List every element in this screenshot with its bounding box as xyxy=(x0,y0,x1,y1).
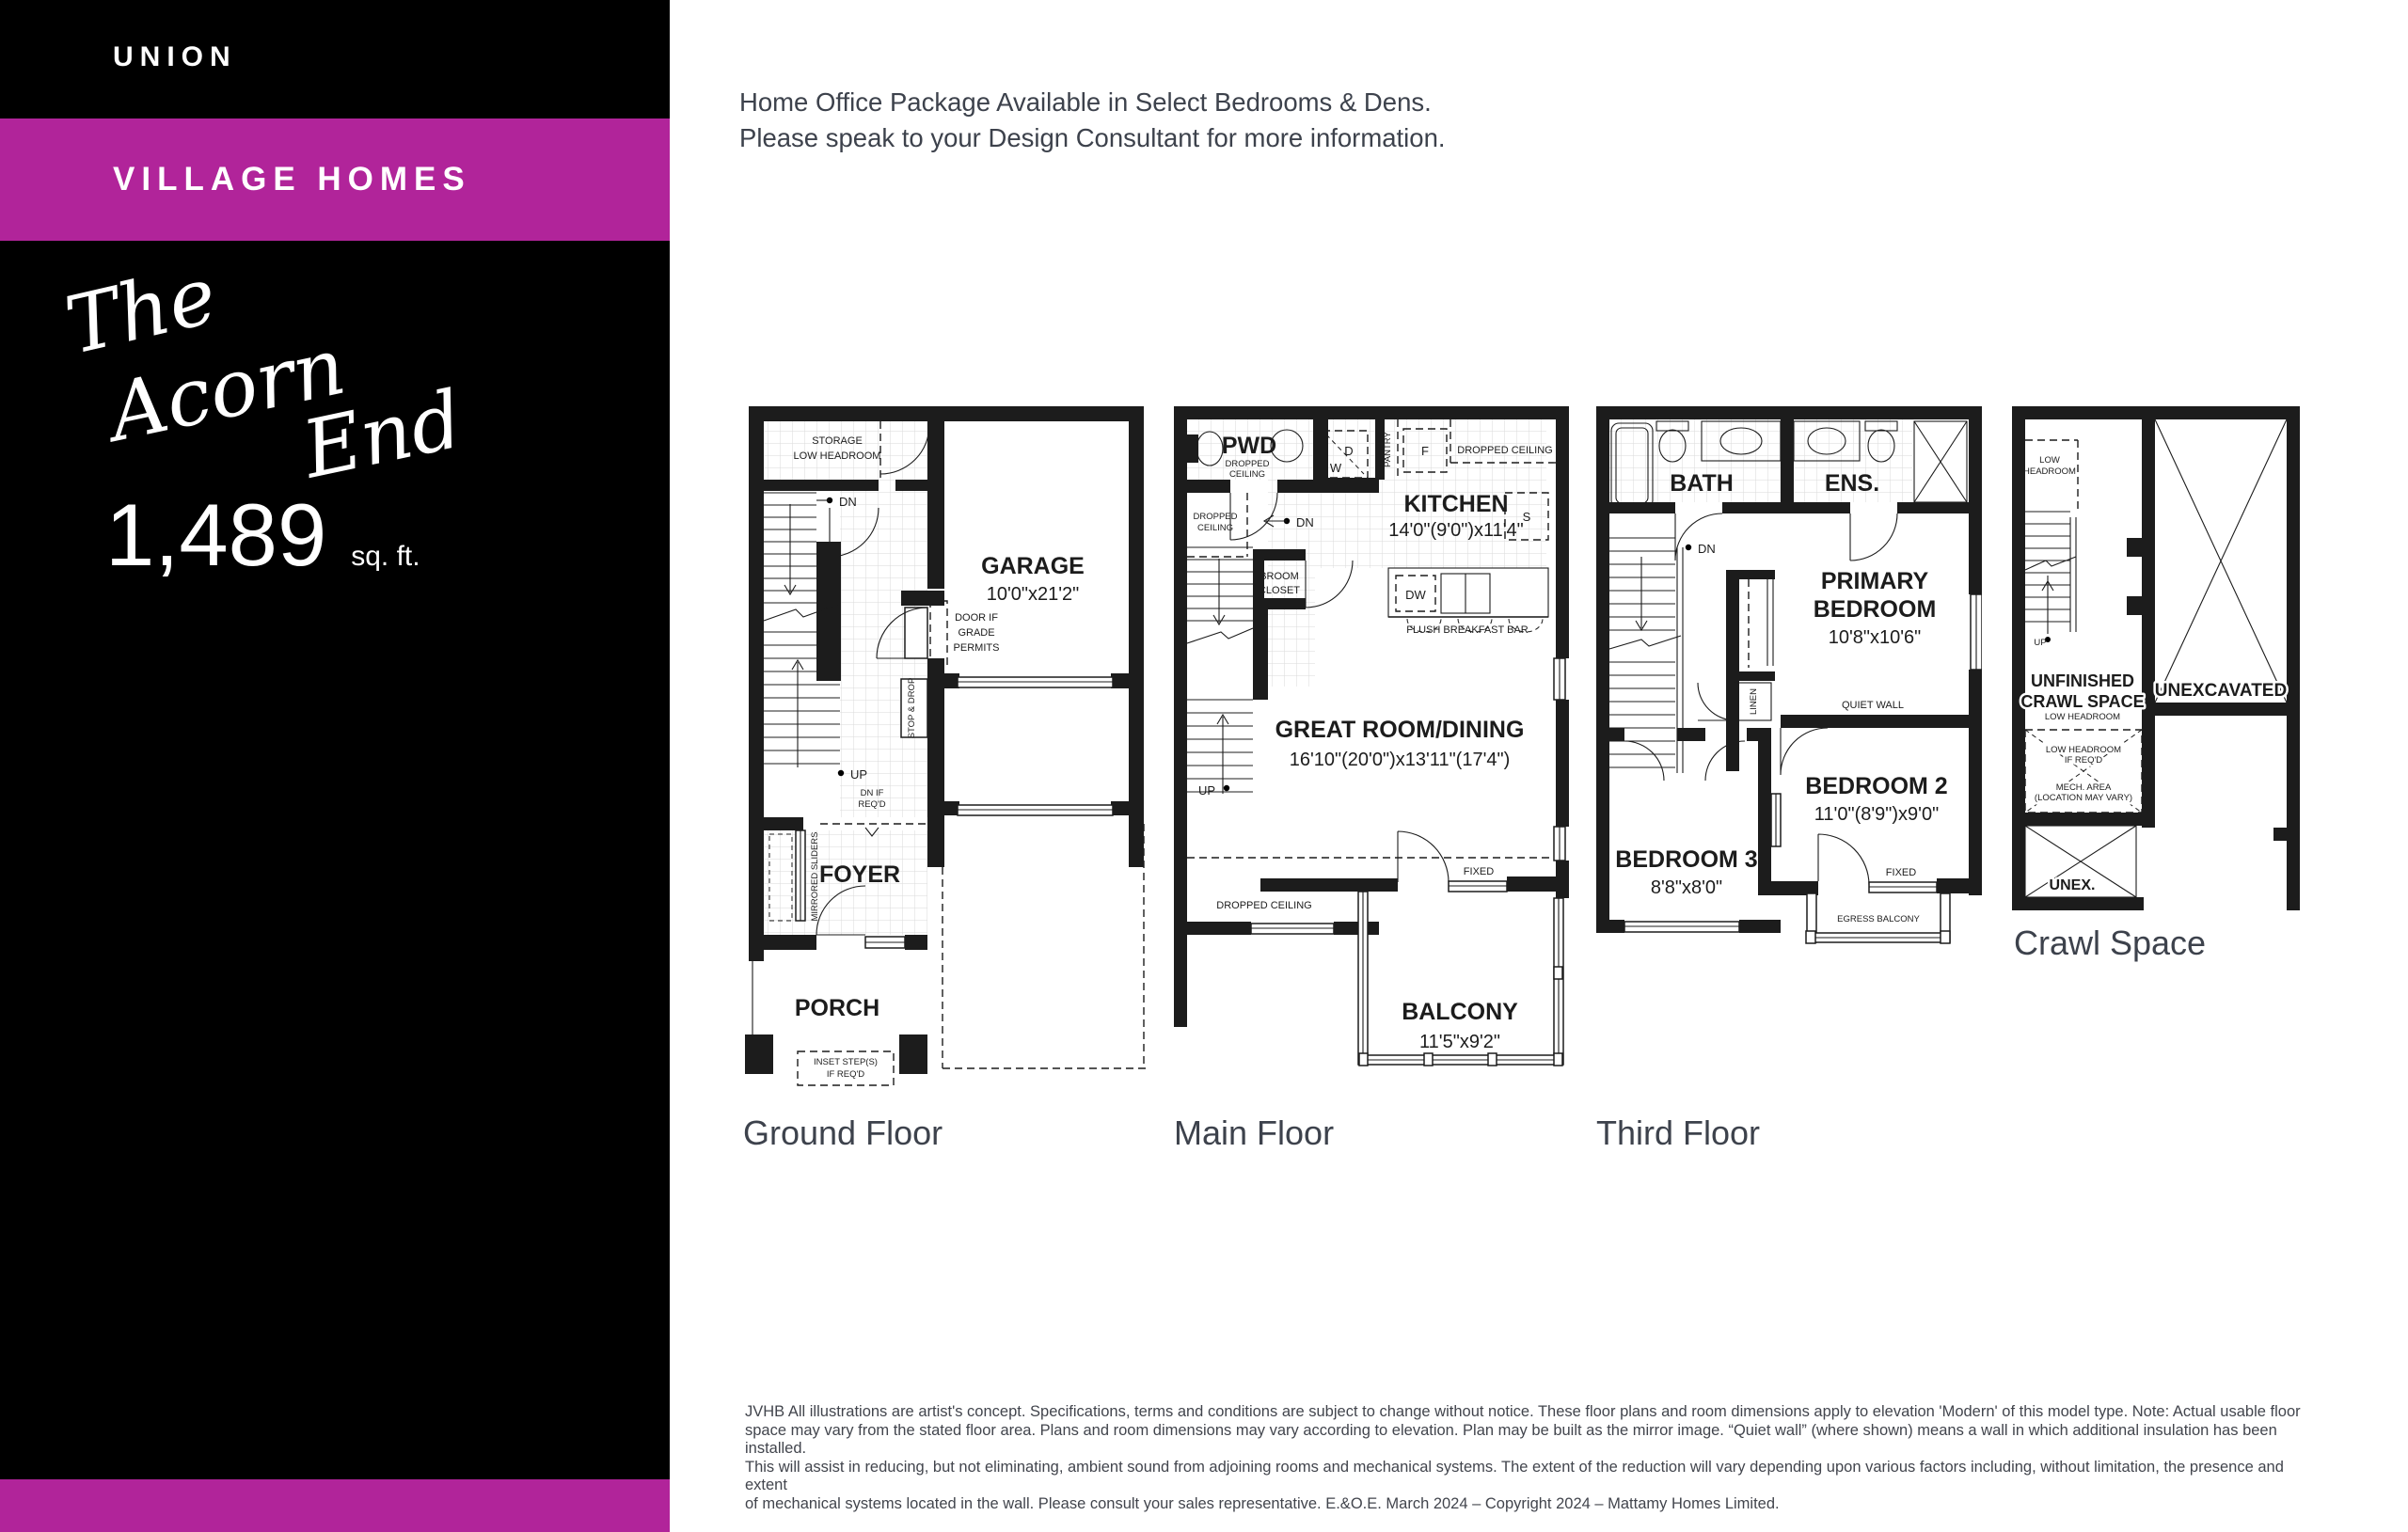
headroom-label: HEADROOM xyxy=(2023,466,2076,477)
fixed-label: FIXED xyxy=(1464,866,1494,877)
great-room-dim: 16'10"(20'0")x13'11"(17'4") xyxy=(1290,750,1511,770)
primary-label-1: PRIMARY xyxy=(1821,568,1929,594)
bedroom3-label: BEDROOM 3 xyxy=(1615,846,1757,873)
pwd-dc2: CEILING xyxy=(1229,469,1265,480)
low-label: LOW xyxy=(2039,455,2060,466)
disclaimer-line-2: space may vary from the stated floor are… xyxy=(745,1422,2325,1459)
porch-label: PORCH xyxy=(795,995,879,1021)
unfinished-label-2: CRAWL SPACE xyxy=(2020,692,2144,711)
fridge-label: F xyxy=(1421,444,1429,458)
area-value: 1,489 xyxy=(105,491,326,579)
up-label: UP xyxy=(2034,638,2046,648)
closet-label: CLOSET xyxy=(1259,585,1300,596)
collection-band: VILLAGE HOMES xyxy=(0,118,670,241)
bedroom3-dim: 8'8"x8'0" xyxy=(1651,877,1722,898)
stove-label: S xyxy=(1523,510,1531,524)
garage-label: GARAGE xyxy=(981,553,1085,579)
legal-disclaimer: JVHB All illustrations are artist's conc… xyxy=(745,1403,2325,1514)
ensuite-label: ENS. xyxy=(1825,470,1879,497)
unfinished-low-headroom: LOW HEADROOM xyxy=(2045,712,2120,722)
egress-balcony-label: EGRESS BALCONY xyxy=(1837,914,1920,924)
kitchen-label: KITCHEN xyxy=(1403,491,1508,517)
kitchen-dim: 14'0"(9'0")x11'4" xyxy=(1388,520,1524,541)
ground-floor-caption: Ground Floor xyxy=(743,1113,943,1153)
foyer-label: FOYER xyxy=(819,861,900,888)
brand-union: UNION xyxy=(113,41,237,73)
collection-name: VILLAGE HOMES xyxy=(113,118,471,241)
sidebar: UNION VILLAGE HOMES The Acorn End 1,489 … xyxy=(0,0,670,1532)
low-headroom-if-reqd-1: LOW HEADROOM xyxy=(2046,745,2121,755)
dc-right-label: DROPPED CEILING xyxy=(1457,445,1552,456)
floor-area: 1,489 sq. ft. xyxy=(105,491,420,579)
quiet-wall-label: QUIET WALL xyxy=(1842,700,1904,711)
home-office-notice: Home Office Package Available in Select … xyxy=(739,85,1446,156)
great-room-label: GREAT ROOM/DINING xyxy=(1275,717,1525,743)
inset-steps-label: INSET STEP(S) xyxy=(814,1057,878,1067)
notice-line-2: Please speak to your Design Consultant f… xyxy=(739,120,1446,156)
reqd-label: REQ'D xyxy=(858,799,885,810)
third-floor-caption: Third Floor xyxy=(1596,1113,1760,1153)
washer-label: W xyxy=(1330,461,1342,475)
dc-bottom-label: DROPPED CEILING xyxy=(1216,900,1311,911)
ground-floor-plan: STORAGE LOW HEADROOM DN GARAGE 10'0"x21'… xyxy=(743,406,1149,1093)
permits-label: PERMITS xyxy=(954,642,1000,654)
pwd-dc1: DROPPED xyxy=(1226,459,1270,469)
up-label: UP xyxy=(1198,783,1215,798)
unex-label: UNEX. xyxy=(2050,877,2096,893)
balcony-dim: 11'5"x9'2" xyxy=(1419,1032,1500,1052)
unexcavated-label: UNEXCAVATED xyxy=(2155,681,2287,701)
breakfast-bar-label: FLUSH BREAKFAST BAR xyxy=(1406,624,1528,636)
stop-drop-label: STOP & DROP xyxy=(907,678,917,739)
primary-dim: 10'8"x10'6" xyxy=(1829,627,1922,648)
fixed-label: FIXED xyxy=(1886,867,1916,878)
main-floor-caption: Main Floor xyxy=(1174,1113,1334,1153)
garage-dim: 10'0"x21'2" xyxy=(987,584,1080,605)
dn-if-label: DN IF xyxy=(861,788,884,798)
dw-label: DW xyxy=(1405,588,1426,602)
storage-label: STORAGE xyxy=(812,435,863,447)
bath-label: BATH xyxy=(1670,470,1734,497)
main-floor-plan: PWD DROPPED CEILING D W PANTRY F DROPPED… xyxy=(1174,406,1569,1093)
unfinished-label-1: UNFINISHED xyxy=(2031,671,2134,690)
mech-area-label-1: MECH. AREA xyxy=(2056,782,2112,793)
dn-label: DN xyxy=(839,495,857,509)
third-floor-plan: BATH ENS. DN PRIMARY BEDROOM 10'8"x10'6"… xyxy=(1596,406,1982,961)
pantry-label: PANTRY xyxy=(1383,432,1393,467)
grade-label: GRADE xyxy=(958,627,994,639)
primary-label-2: BEDROOM xyxy=(1814,596,1937,623)
dn-label: DN xyxy=(1698,542,1716,556)
bottom-accent-band xyxy=(0,1479,670,1532)
dc-left1: DROPPED xyxy=(1194,512,1238,522)
notice-line-1: Home Office Package Available in Select … xyxy=(739,85,1446,120)
crawl-space-plan: LOW HEADROOM UP UNFINISHED CRAWL SPACE L… xyxy=(2012,406,2300,919)
mech-area-label-2: (LOCATION MAY VARY) xyxy=(2035,793,2132,803)
up-label: UP xyxy=(850,767,867,782)
pwd-label: PWD xyxy=(1222,433,1276,459)
bedroom2-dim: 11'0"(8'9")x9'0" xyxy=(1814,804,1939,825)
inset-reqd-label: IF REQ'D xyxy=(827,1069,864,1080)
balcony-label: BALCONY xyxy=(1402,999,1518,1025)
storage-low-headroom-label: LOW HEADROOM xyxy=(794,450,881,462)
disclaimer-line-3: This will assist in reducing, but not el… xyxy=(745,1459,2325,1495)
crawl-space-caption: Crawl Space xyxy=(2014,924,2206,963)
door-if-label: DOOR IF xyxy=(955,612,998,624)
bedroom2-label: BEDROOM 2 xyxy=(1805,773,1947,799)
low-headroom-if-reqd-2: IF REQ'D xyxy=(2065,755,2102,766)
dryer-label: D xyxy=(1344,444,1353,458)
disclaimer-line-4: of mechanical systems located in the wal… xyxy=(745,1495,2325,1514)
linen-label: LINEN xyxy=(1749,688,1759,715)
dc-left2: CEILING xyxy=(1197,523,1233,533)
disclaimer-line-1: JVHB All illustrations are artist's conc… xyxy=(745,1403,2325,1422)
broom-label: BROOM xyxy=(1259,571,1299,582)
dn-label: DN xyxy=(1296,515,1314,529)
area-unit: sq. ft. xyxy=(351,541,420,573)
